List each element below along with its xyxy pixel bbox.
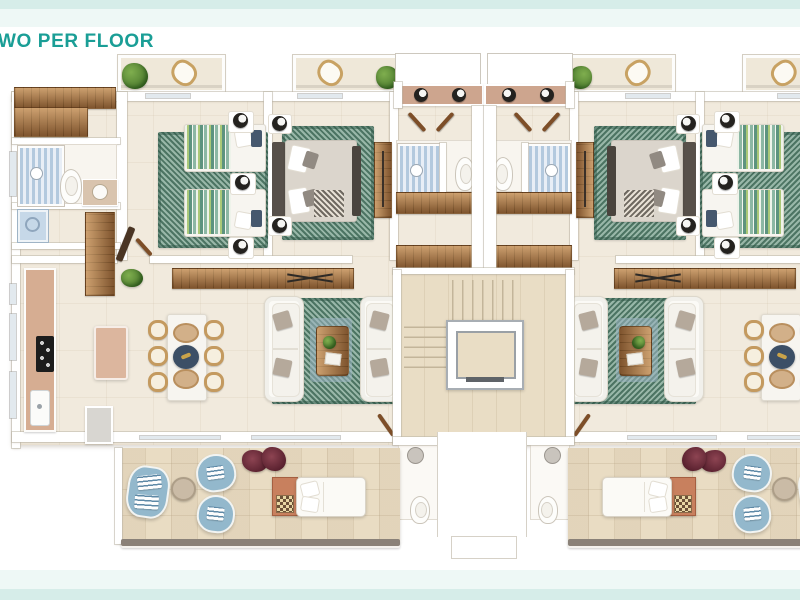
elevator-car	[456, 331, 516, 379]
floor-plan	[0, 0, 800, 600]
entrance-lobby	[437, 432, 527, 537]
entry-step	[452, 537, 516, 558]
page: WO PER FLOOR	[0, 0, 800, 600]
elevator	[446, 320, 524, 390]
core-wall	[393, 437, 443, 445]
core-wall	[393, 270, 401, 443]
staircase	[452, 280, 516, 322]
core-wall	[393, 268, 574, 274]
core-wall	[524, 437, 574, 445]
central-core	[0, 0, 800, 600]
staircase	[404, 320, 446, 368]
core-wall	[566, 270, 574, 443]
elevator-door	[466, 377, 504, 382]
